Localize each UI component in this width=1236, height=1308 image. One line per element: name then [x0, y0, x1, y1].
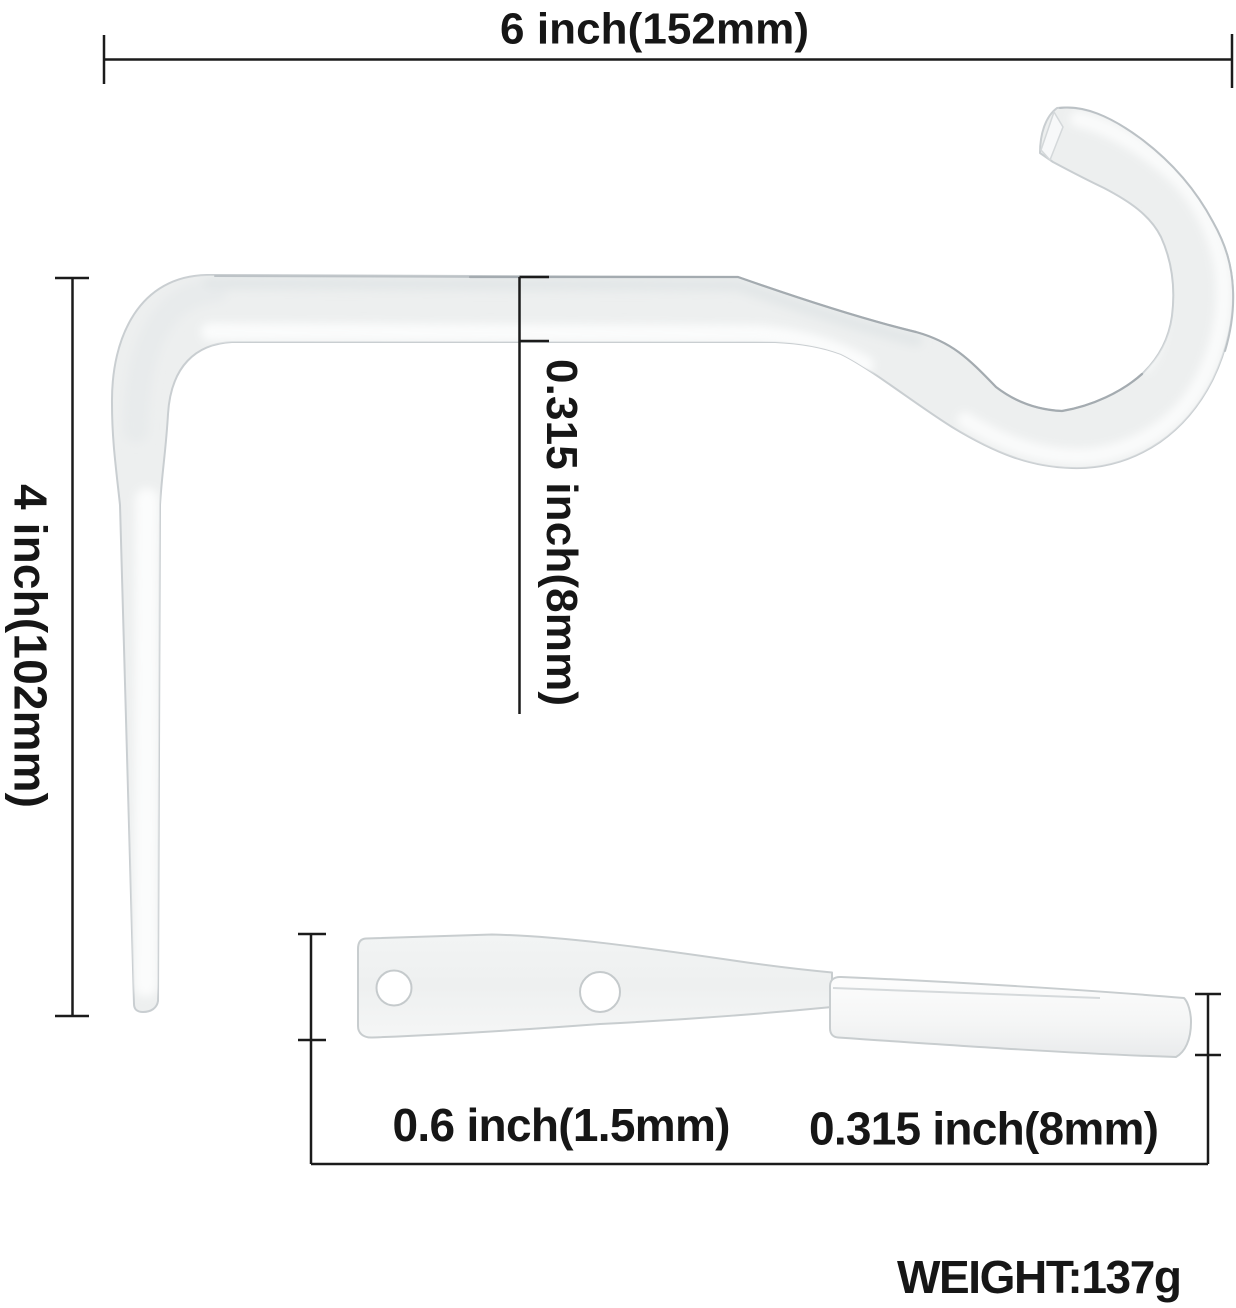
svg-text:0.315 inch(8mm): 0.315 inch(8mm): [809, 1103, 1159, 1155]
svg-text:WEIGHT:137g: WEIGHT:137g: [897, 1251, 1182, 1303]
svg-text:0.315 inch(8mm): 0.315 inch(8mm): [537, 359, 586, 706]
svg-text:0.6 inch(1.5mm): 0.6 inch(1.5mm): [393, 1099, 731, 1151]
svg-text:4 inch(102mm): 4 inch(102mm): [5, 484, 57, 808]
svg-text:6 inch(152mm): 6 inch(152mm): [500, 5, 809, 54]
